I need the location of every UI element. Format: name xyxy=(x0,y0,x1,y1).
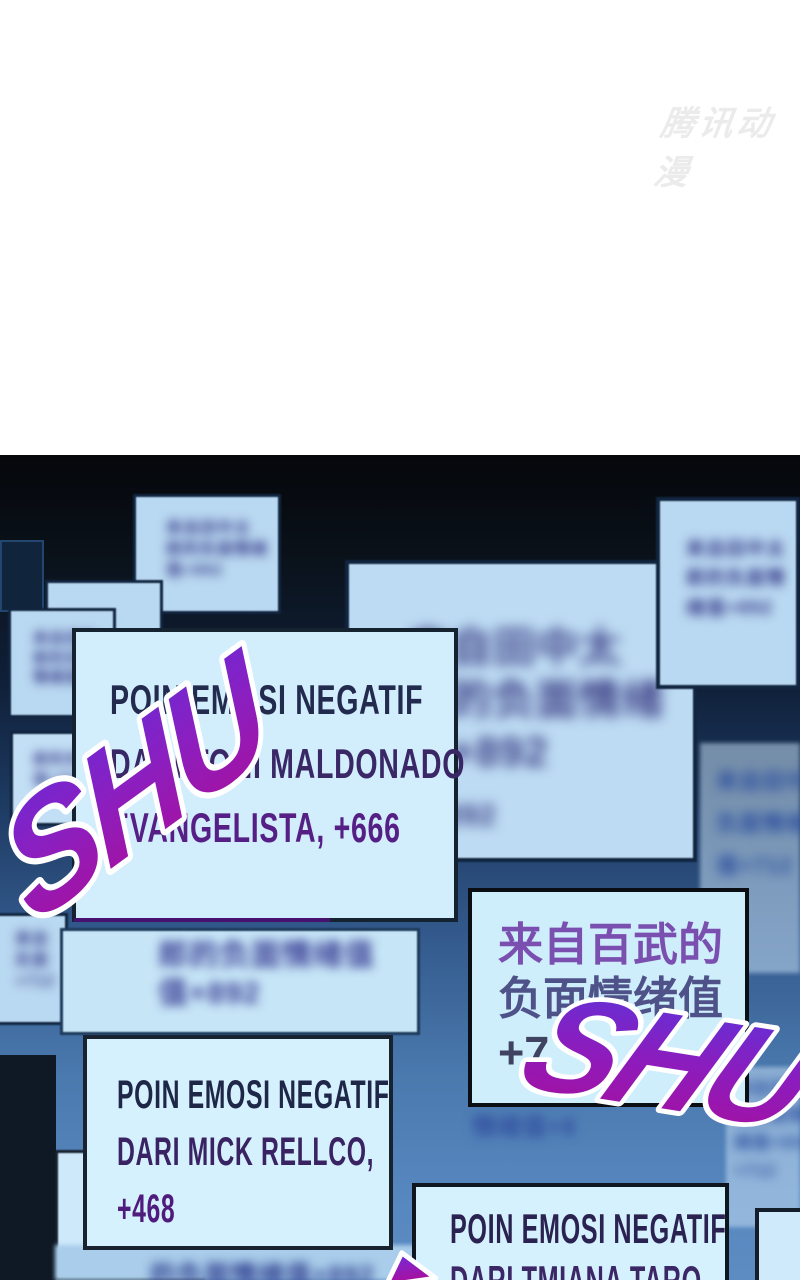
bg-note-text: 来自田中太 郎的负面情 绪值+892 xyxy=(686,535,796,623)
bg-dark-box xyxy=(0,540,44,612)
bg-note-text: 来自田中太 郎的负面情绪 值+892 xyxy=(166,519,278,581)
notification-box-mick: POIN EMOSI NEGATIF DARI MICK RELLCO, +46… xyxy=(83,1035,393,1250)
notification-line: 来自百武的 xyxy=(498,918,723,972)
bg-dark-box xyxy=(0,1055,56,1280)
notification-line: DARI TMIANA TARO xyxy=(450,1255,702,1280)
publisher-watermark: 腾讯动漫 xyxy=(651,96,800,194)
sfx-text: SHU xyxy=(498,969,800,1158)
manga-panel: 来自田中太 郎的负面情绪 值+892 来自田中 郎的负面 情绪值+8 郎的负 值… xyxy=(0,455,800,1280)
notification-line: DARI MICK RELLCO, xyxy=(117,1124,374,1181)
notification-line: POIN EMOSI NEGATIF xyxy=(450,1203,726,1255)
sfx-shu-tip xyxy=(380,1250,440,1280)
notification-line: +468 xyxy=(117,1181,175,1238)
bg-note-text: 来自田中 负面情绪 值+712 xyxy=(716,761,800,886)
bg-notification-box xyxy=(755,1208,800,1280)
sfx-shu-left: SHU xyxy=(0,620,320,980)
sfx-shu-right: SHU xyxy=(505,970,800,1180)
notification-box-taro: POIN EMOSI NEGATIF DARI TMIANA TARO xyxy=(412,1183,729,1280)
manga-page: 腾讯动漫 来自田中太 郎的负面情绪 值+892 来自田中 郎的负面 情绪值+8 … xyxy=(0,0,800,1280)
sfx-text: SHU xyxy=(0,615,295,956)
notification-line: POIN EMOSI NEGATIF xyxy=(117,1067,389,1124)
bg-notification-box: 来自田中太 郎的负面情 绪值+892 xyxy=(656,497,800,689)
bg-note-text: 的负面情绪值+892 xyxy=(150,1255,375,1280)
